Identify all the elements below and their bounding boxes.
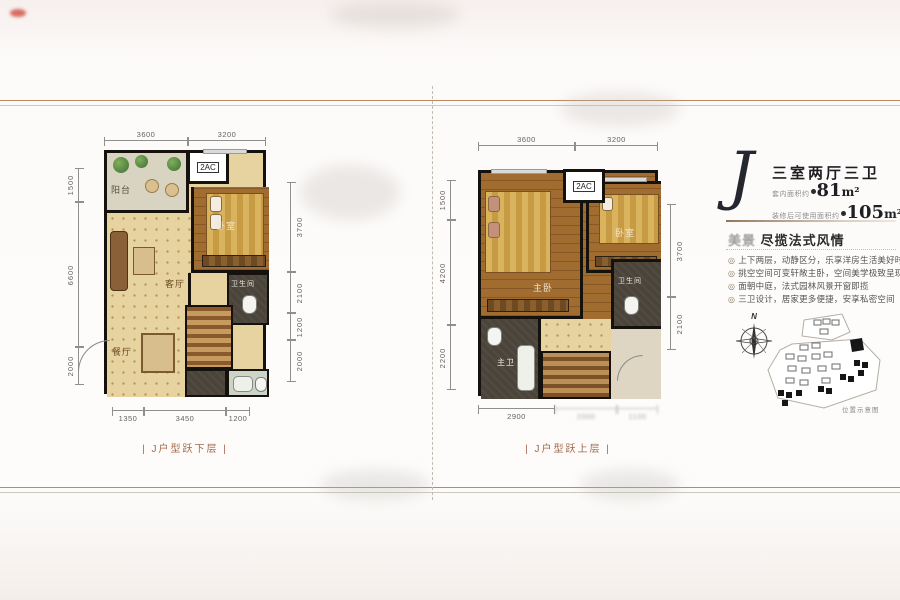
dim-value: 3700: [295, 217, 304, 238]
dim-upper-bottom-1: 2900: [478, 408, 555, 409]
door-arc: [617, 355, 643, 381]
feature-text: 上下两层，动静区分，乐享洋房生活美好时光: [738, 255, 900, 265]
dot-icon: [811, 189, 816, 194]
dim-upper-top-1: 3600: [478, 145, 575, 146]
dim-lower-top-1: 3600: [104, 140, 188, 141]
chair-icon: [165, 183, 179, 197]
dim-lower-right-1: 3700: [290, 182, 291, 272]
plan-upper-body: 主卧 卧室 2AC 主卫: [478, 170, 658, 396]
room-label: 主卫: [497, 357, 515, 368]
dim-value: 3600: [478, 135, 575, 144]
pillow-icon: [210, 196, 222, 212]
feature-text: 挑空空间可变轩敞主卧，空间美学极致呈现: [738, 268, 900, 278]
toilet-icon: [255, 377, 267, 392]
coffee-table-icon: [133, 247, 155, 275]
feature-item: ◎挑空空间可变轩敞主卧，空间美学极致呈现: [728, 267, 896, 280]
pillow-icon: [488, 196, 500, 212]
feature-list: ◎上下两层，动静区分，乐享洋房生活美好时光 ◎挑空空间可变轩敞主卧，空间美学极致…: [728, 254, 896, 306]
bullet-icon: ◎: [728, 282, 735, 291]
dim-value: 1200: [226, 414, 250, 423]
dim-upper-right-1: 3700: [670, 204, 671, 297]
room-master-bath: 主卫: [481, 319, 541, 399]
plan-upper-caption: | J户型跃上层 |: [478, 440, 658, 455]
dim-lower-left-2: 6600: [78, 202, 79, 347]
ac-label: 2AC: [197, 162, 219, 173]
dim-value: 3200: [575, 135, 658, 144]
dim-lower-right-3: 1200: [290, 313, 291, 340]
dim-upper-right-2: 2100: [670, 297, 671, 350]
bottom-border-rule: [0, 487, 900, 493]
dim-value: 6600: [66, 264, 75, 285]
feature-text: 面朝中庭，法式园林风景开窗即揽: [738, 281, 869, 291]
ac-unit-box: 2AC: [563, 169, 605, 203]
bathtub-icon: [233, 376, 253, 392]
room-dining: 餐厅: [107, 323, 191, 397]
plant-icon: [167, 157, 181, 171]
dim-value: 2100: [675, 313, 684, 334]
ac-unit-box: 2AC: [187, 150, 229, 184]
dim-value: 3700: [675, 240, 684, 261]
dotted-divider: [726, 249, 896, 250]
area-unit: m²: [884, 207, 900, 221]
dim-value: 1200: [295, 316, 304, 337]
feature-item: ◎三卫设计，居家更多便捷，安享私密空间: [728, 293, 896, 306]
wardrobe-icon: [487, 299, 569, 312]
dim-value: 1500: [66, 175, 75, 196]
area-row-interior: 套内面积约81m²: [772, 180, 860, 201]
room-label: 卧室: [615, 226, 635, 239]
dim-lower-bottom-3: 1200: [226, 410, 250, 411]
gradient-divider: [726, 220, 896, 222]
dim-upper-bottom-2: 2000: [555, 408, 617, 409]
watermark-smudge: [560, 92, 680, 126]
dim-upper-top-2: 3200: [575, 145, 658, 146]
dot-icon: [841, 211, 846, 216]
dim-lower-bottom-1: 1350: [112, 410, 144, 411]
dim-value: 3600: [104, 130, 188, 139]
toilet-icon: [242, 295, 257, 314]
dim-value: 1100: [617, 412, 658, 421]
slogan-main: 尽揽法式风情: [756, 233, 845, 248]
bed-icon: [485, 191, 551, 273]
dim-upper-left-3: 2200: [450, 325, 451, 390]
dim-lower-right-2: 2100: [290, 272, 291, 313]
window: [491, 169, 547, 174]
room-utility: [185, 369, 227, 397]
site-map: [762, 312, 896, 417]
dining-table-icon: [141, 333, 175, 373]
room-bath-2: [227, 369, 269, 397]
slogan: 美景 尽揽法式风情: [728, 230, 845, 249]
bathtub-icon: [517, 345, 535, 391]
plant-icon: [113, 157, 129, 173]
room-bedroom: 卧室: [191, 187, 269, 273]
room-label: 餐厅: [112, 345, 132, 358]
site-map-icon: [762, 312, 896, 412]
dim-value: 1500: [438, 190, 447, 211]
entry-door-arc: [78, 340, 110, 372]
dim-value: 2000: [555, 412, 617, 421]
unit-letter: J: [728, 148, 754, 204]
room-bathroom: 卫生间: [227, 273, 269, 325]
toilet-icon: [487, 327, 502, 346]
room-label: 主卧: [533, 281, 553, 294]
area-value: 81: [817, 180, 842, 201]
feature-item: ◎面朝中庭，法式园林风景开窗即揽: [728, 280, 896, 293]
dim-value: 4200: [438, 262, 447, 283]
area-label: 套内面积约: [772, 191, 810, 198]
window: [599, 177, 647, 182]
slogan-prefix: 美景: [728, 233, 756, 248]
floorplan-brochure-page: 3600 3200 1500 6600 2000 3700 2100 1200 …: [0, 0, 900, 600]
plan-lower-caption: | J户型跃下层 |: [104, 440, 266, 455]
wall-segment: [188, 273, 191, 307]
room-label: 卫生间: [231, 279, 255, 289]
plan-lower-body: 阳台 2AC 卧室 客厅: [104, 150, 266, 394]
area-unit: m²: [842, 185, 860, 199]
window: [203, 149, 247, 154]
area-label: 装修后可使用面积约: [772, 213, 840, 220]
room-label: 卫生间: [618, 276, 642, 286]
site-map-caption: 位置示意图: [842, 404, 880, 414]
dashed-divider: [432, 86, 433, 500]
feature-item: ◎上下两层，动静区分，乐享洋房生活美好时光: [728, 254, 896, 267]
dim-upper-left-1: 1500: [450, 180, 451, 220]
ac-label: 2AC: [573, 181, 595, 192]
dim-lower-right-4: 2000: [290, 340, 291, 382]
room-closet: [611, 329, 661, 399]
room-label: 卧室: [216, 219, 236, 232]
bullet-icon: ◎: [728, 256, 735, 265]
dim-value: 2000: [66, 356, 75, 377]
toilet-icon: [624, 296, 639, 315]
plan-lower-floor: 3600 3200 1500 6600 2000 3700 2100 1200 …: [58, 128, 343, 463]
dim-upper-left-2: 4200: [450, 220, 451, 325]
plan-upper-floor: 3600 3200 1500 4200 2200 3700 2100 2900 …: [436, 128, 691, 463]
dim-value: 3450: [144, 414, 226, 423]
bullet-icon: ◎: [728, 269, 735, 278]
dim-value: 2100: [295, 282, 304, 303]
dim-value: 2200: [438, 347, 447, 368]
room-label: 客厅: [165, 277, 185, 290]
room-label: 阳台: [111, 183, 131, 196]
bullet-icon: ◎: [728, 295, 735, 304]
dim-lower-top-2: 3200: [188, 140, 266, 141]
dim-value: 2000: [295, 351, 304, 372]
dim-upper-bottom-3: 1100: [617, 408, 658, 409]
watermark-smudge: [320, 470, 430, 500]
watermark-smudge: [330, 2, 460, 28]
wardrobe-icon: [202, 255, 266, 267]
top-border-rule: [0, 100, 900, 106]
dim-value: 3200: [188, 130, 266, 139]
stairs: [541, 351, 611, 399]
chair-icon: [145, 179, 159, 193]
pillow-icon: [488, 222, 500, 238]
dim-lower-left-1: 1500: [78, 168, 79, 202]
room-bathroom: 卫生间: [611, 259, 661, 329]
watermark-red-mark: [10, 9, 26, 17]
dim-lower-bottom-2: 3450: [144, 410, 226, 411]
stairs: [185, 305, 233, 369]
room-living: 客厅: [107, 213, 191, 323]
dim-value: 2900: [478, 412, 555, 421]
watermark-smudge: [580, 470, 680, 500]
plant-icon: [135, 155, 148, 168]
stair-landing: [541, 319, 611, 351]
feature-text: 三卫设计，居家更多便捷，安享私密空间: [738, 294, 895, 304]
sofa-icon: [110, 231, 128, 291]
dim-value: 1350: [112, 414, 144, 423]
room-balcony: 阳台: [107, 153, 189, 213]
